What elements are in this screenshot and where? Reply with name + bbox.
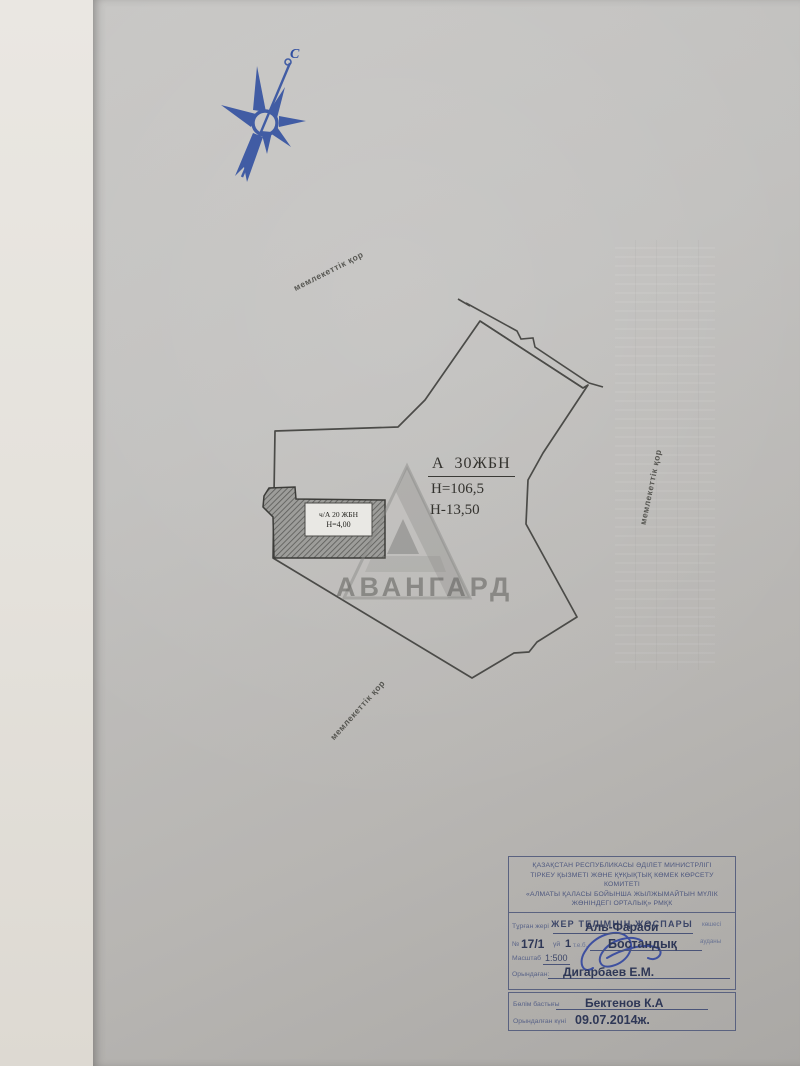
- watermark-text: АВАНГАРД: [336, 572, 513, 603]
- building-code: А 30ЖБН: [428, 455, 515, 477]
- building-inner-label: ч/А 20 ЖБН Н=4,00: [305, 503, 372, 536]
- head-label: Бөлім бастығы: [513, 1001, 560, 1008]
- number-value: 17/1: [521, 937, 544, 951]
- building-inner-height: Н=4,00: [326, 520, 350, 529]
- boundary-band: [458, 299, 603, 388]
- house-label: үй: [553, 941, 560, 948]
- executor-label: Орындаған:: [512, 971, 549, 978]
- head-value: Бектенов К.А: [585, 996, 663, 1010]
- date-label: Орындалған күні: [513, 1018, 566, 1025]
- street-suffix: көшесі: [702, 921, 721, 928]
- elevation-value: Н=106,5: [428, 481, 515, 498]
- district-value: Бостандық: [608, 937, 677, 951]
- stamp-header-line: ЖӨНІНДЕГІ ОРТАЛЫҚ» РМҚК: [515, 899, 729, 909]
- stamp-header-line: «АЛМАТЫ ҚАЛАСЫ БОЙЫНША ЖЫЛЖЫМАЙТЫН МҮЛІК: [515, 890, 729, 900]
- location-value: Аль-Фараби: [585, 920, 658, 934]
- location-label: Тұрған жері: [512, 923, 549, 930]
- executor-value: Дигарбаев Е.М.: [563, 965, 654, 979]
- height-value: Н-13,50: [428, 502, 515, 519]
- stamp-header-line: ҚАЗАҚСТАН РЕСПУБЛИКАСЫ ӘДІЛЕТ МИНИСТРЛІГ…: [515, 861, 729, 871]
- plot-area-label: А 30ЖБН Н=106,5 Н-13,50: [428, 455, 515, 519]
- unit-label: т.е.б.: [573, 942, 587, 949]
- north-label: С: [290, 47, 299, 63]
- date-value: 09.07.2014ж.: [575, 1013, 650, 1027]
- house-value: 1: [565, 938, 571, 950]
- stamp-header: ҚАЗАҚСТАН РЕСПУБЛИКАСЫ ӘДІЛЕТ МИНИСТРЛІГ…: [509, 857, 735, 913]
- number-label: №: [512, 941, 519, 948]
- scale-label: Масштаб: [512, 955, 541, 962]
- document-photo: С мемлекеттік қор мемлекеттік қор мемлек…: [0, 0, 800, 1066]
- building-inner-code: ч/А 20 ЖБН: [319, 510, 358, 519]
- district-suffix: ауданы: [700, 938, 721, 945]
- stamp-header-line: ТІРКЕУ ҚЫЗМЕТІ ЖӘНЕ ҚҰҚЫҚТЫҚ КӨМЕК КӨРСЕ…: [515, 871, 729, 890]
- compass-rose-icon: [221, 59, 306, 182]
